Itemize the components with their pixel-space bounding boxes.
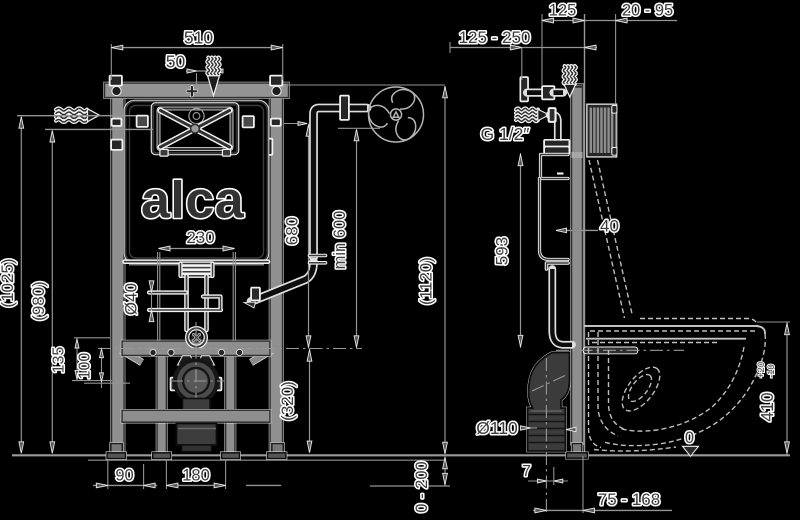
svg-text:230: 230 xyxy=(186,228,214,247)
svg-text:510: 510 xyxy=(184,28,213,48)
svg-text:min 600: min 600 xyxy=(331,211,349,270)
svg-text:680: 680 xyxy=(283,217,302,245)
svg-text:(320): (320) xyxy=(278,381,297,421)
svg-text:593: 593 xyxy=(493,237,512,265)
svg-text:50: 50 xyxy=(166,52,186,72)
svg-text:Ø110: Ø110 xyxy=(476,418,518,438)
svg-text:(1025): (1025) xyxy=(0,258,17,307)
svg-text:20 - 95: 20 - 95 xyxy=(622,2,673,20)
svg-text:G 1/2″: G 1/2″ xyxy=(481,124,530,144)
svg-text:100: 100 xyxy=(77,353,94,380)
svg-text:alca: alca xyxy=(141,172,245,230)
svg-text:90: 90 xyxy=(115,467,133,485)
svg-text:125 - 250: 125 - 250 xyxy=(459,28,531,47)
svg-text:0: 0 xyxy=(685,429,694,447)
svg-text:75 - 168: 75 - 168 xyxy=(598,490,660,509)
svg-text:180: 180 xyxy=(182,467,210,485)
svg-text:135: 135 xyxy=(51,347,68,374)
svg-text:Ø40: Ø40 xyxy=(122,283,141,315)
svg-text:125: 125 xyxy=(549,2,577,20)
svg-text:(980): (980) xyxy=(29,281,48,321)
svg-text:0 - 200: 0 - 200 xyxy=(413,461,431,512)
svg-text:40: 40 xyxy=(600,217,619,236)
svg-text:7: 7 xyxy=(522,463,531,480)
svg-text:(1120): (1120) xyxy=(417,257,436,305)
svg-text:410: 410 xyxy=(757,392,777,421)
svg-text:-10: -10 xyxy=(766,364,777,378)
